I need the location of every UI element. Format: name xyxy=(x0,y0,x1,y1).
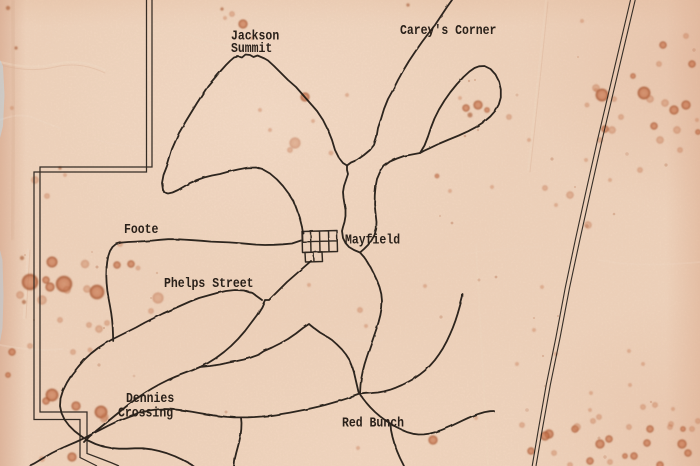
svg-text:Phelps Street: Phelps Street xyxy=(164,275,254,291)
svg-text:Foote: Foote xyxy=(124,221,159,237)
svg-text:Carey's Corner: Carey's Corner xyxy=(400,22,496,38)
svg-text:Summit: Summit xyxy=(231,40,272,56)
svg-text:Red Bunch: Red Bunch xyxy=(342,414,404,430)
svg-text:Mayfield: Mayfield xyxy=(345,231,400,247)
svg-text:Crossing: Crossing xyxy=(118,404,173,420)
